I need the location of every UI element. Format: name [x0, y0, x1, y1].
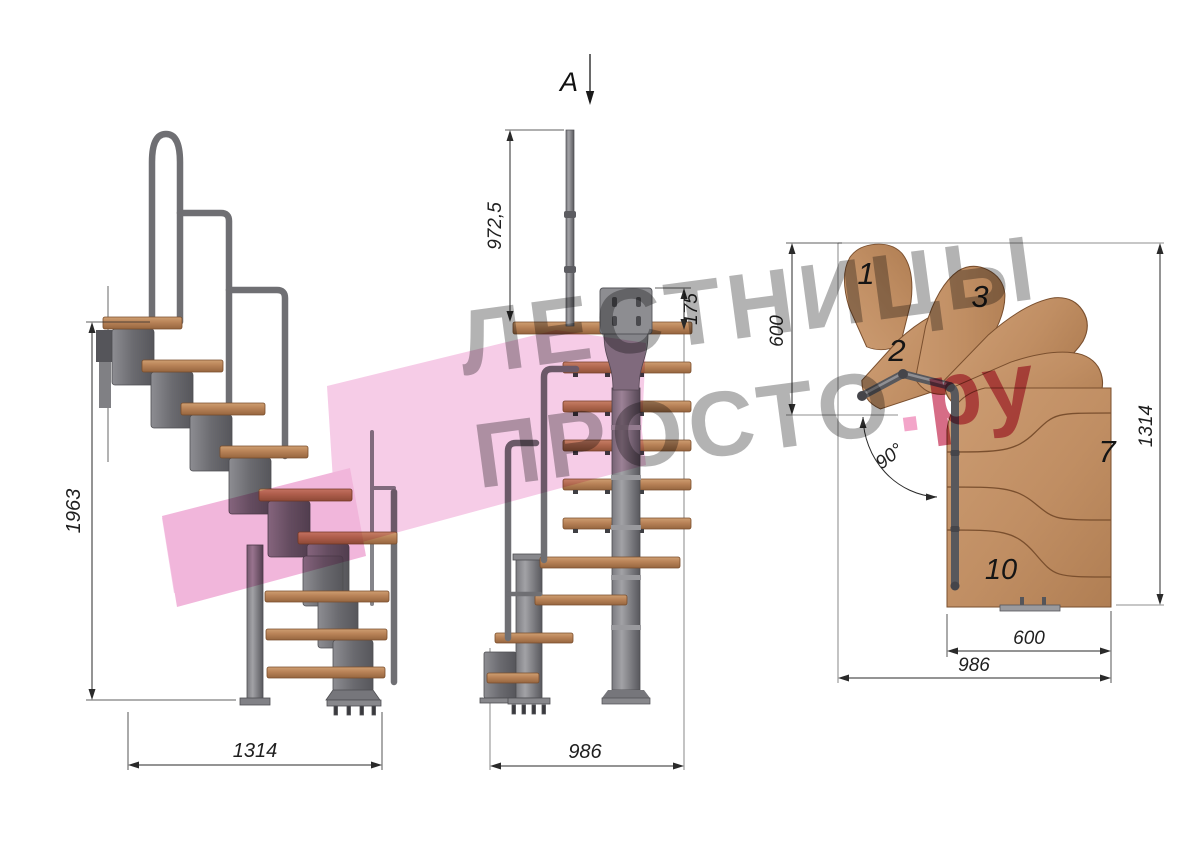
- dim-label-handrail-height: 972,5: [485, 202, 506, 250]
- straight-flight: [947, 388, 1111, 607]
- dim-plan-length: 1314: [1136, 243, 1164, 605]
- top-baluster: [564, 130, 576, 326]
- dim-entry-width: 600: [767, 243, 842, 415]
- dim-label-front-depth: 986: [568, 741, 602, 763]
- dim-label-turn-angle: 90°: [872, 439, 908, 473]
- plan-view: 90° 1 2 3 7 10 600 1314: [767, 241, 1164, 683]
- step-number-2: 2: [887, 333, 905, 368]
- dim-label-flight-width: 600: [1013, 628, 1045, 649]
- mount-plate: [600, 288, 652, 334]
- dim-plan-width: 986: [838, 655, 1111, 682]
- staircase-drawing: 1963 1314 A: [0, 0, 1200, 849]
- step-number-7: 7: [1098, 434, 1117, 469]
- dim-label-side-length: 1314: [233, 740, 278, 762]
- section-cut-marker: A: [558, 54, 594, 105]
- section-cut-label: A: [558, 67, 578, 97]
- wall-bracket: [96, 330, 112, 408]
- step-number-3: 3: [971, 279, 988, 314]
- drawing-canvas: 1963 1314 A: [0, 0, 1200, 849]
- dim-side-length: 1314: [128, 712, 382, 770]
- dim-label-entry-width: 600: [767, 315, 788, 347]
- dim-label-plate: 175: [681, 293, 702, 325]
- dim-handrail-height: 972,5: [485, 130, 564, 322]
- step-number-1: 1: [857, 256, 874, 291]
- step-number-10: 10: [985, 554, 1017, 586]
- turn-angle-arc: 90°: [860, 417, 938, 501]
- dim-label-plan-width: 986: [958, 655, 990, 676]
- dim-label-plan-length: 1314: [1136, 405, 1157, 447]
- dim-front-depth: 986: [490, 741, 684, 770]
- dim-label-total-height: 1963: [63, 489, 85, 534]
